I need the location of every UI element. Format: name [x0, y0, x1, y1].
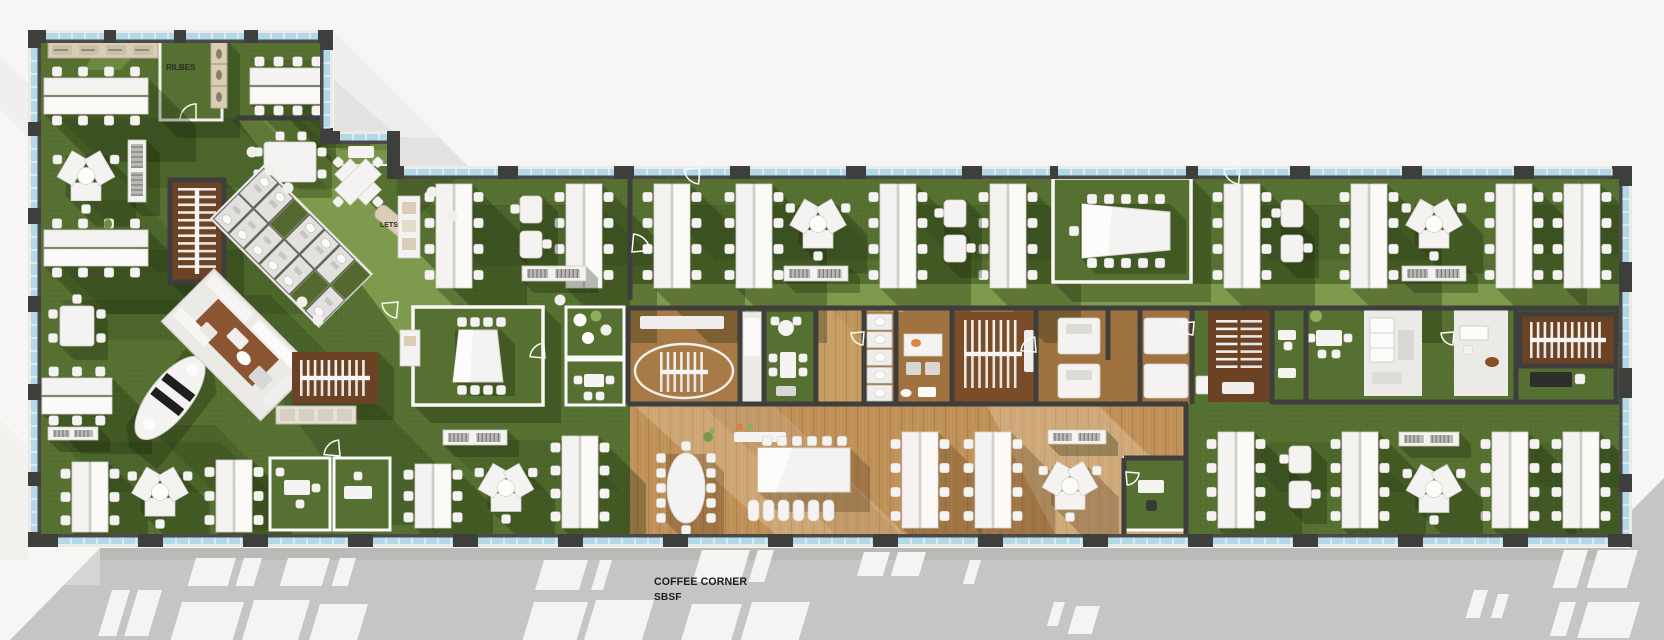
- svg-text:COFFEE CORNER: COFFEE CORNER: [654, 576, 747, 588]
- svg-text:SBSF: SBSF: [654, 592, 682, 603]
- svg-text:RILBES: RILBES: [166, 63, 196, 72]
